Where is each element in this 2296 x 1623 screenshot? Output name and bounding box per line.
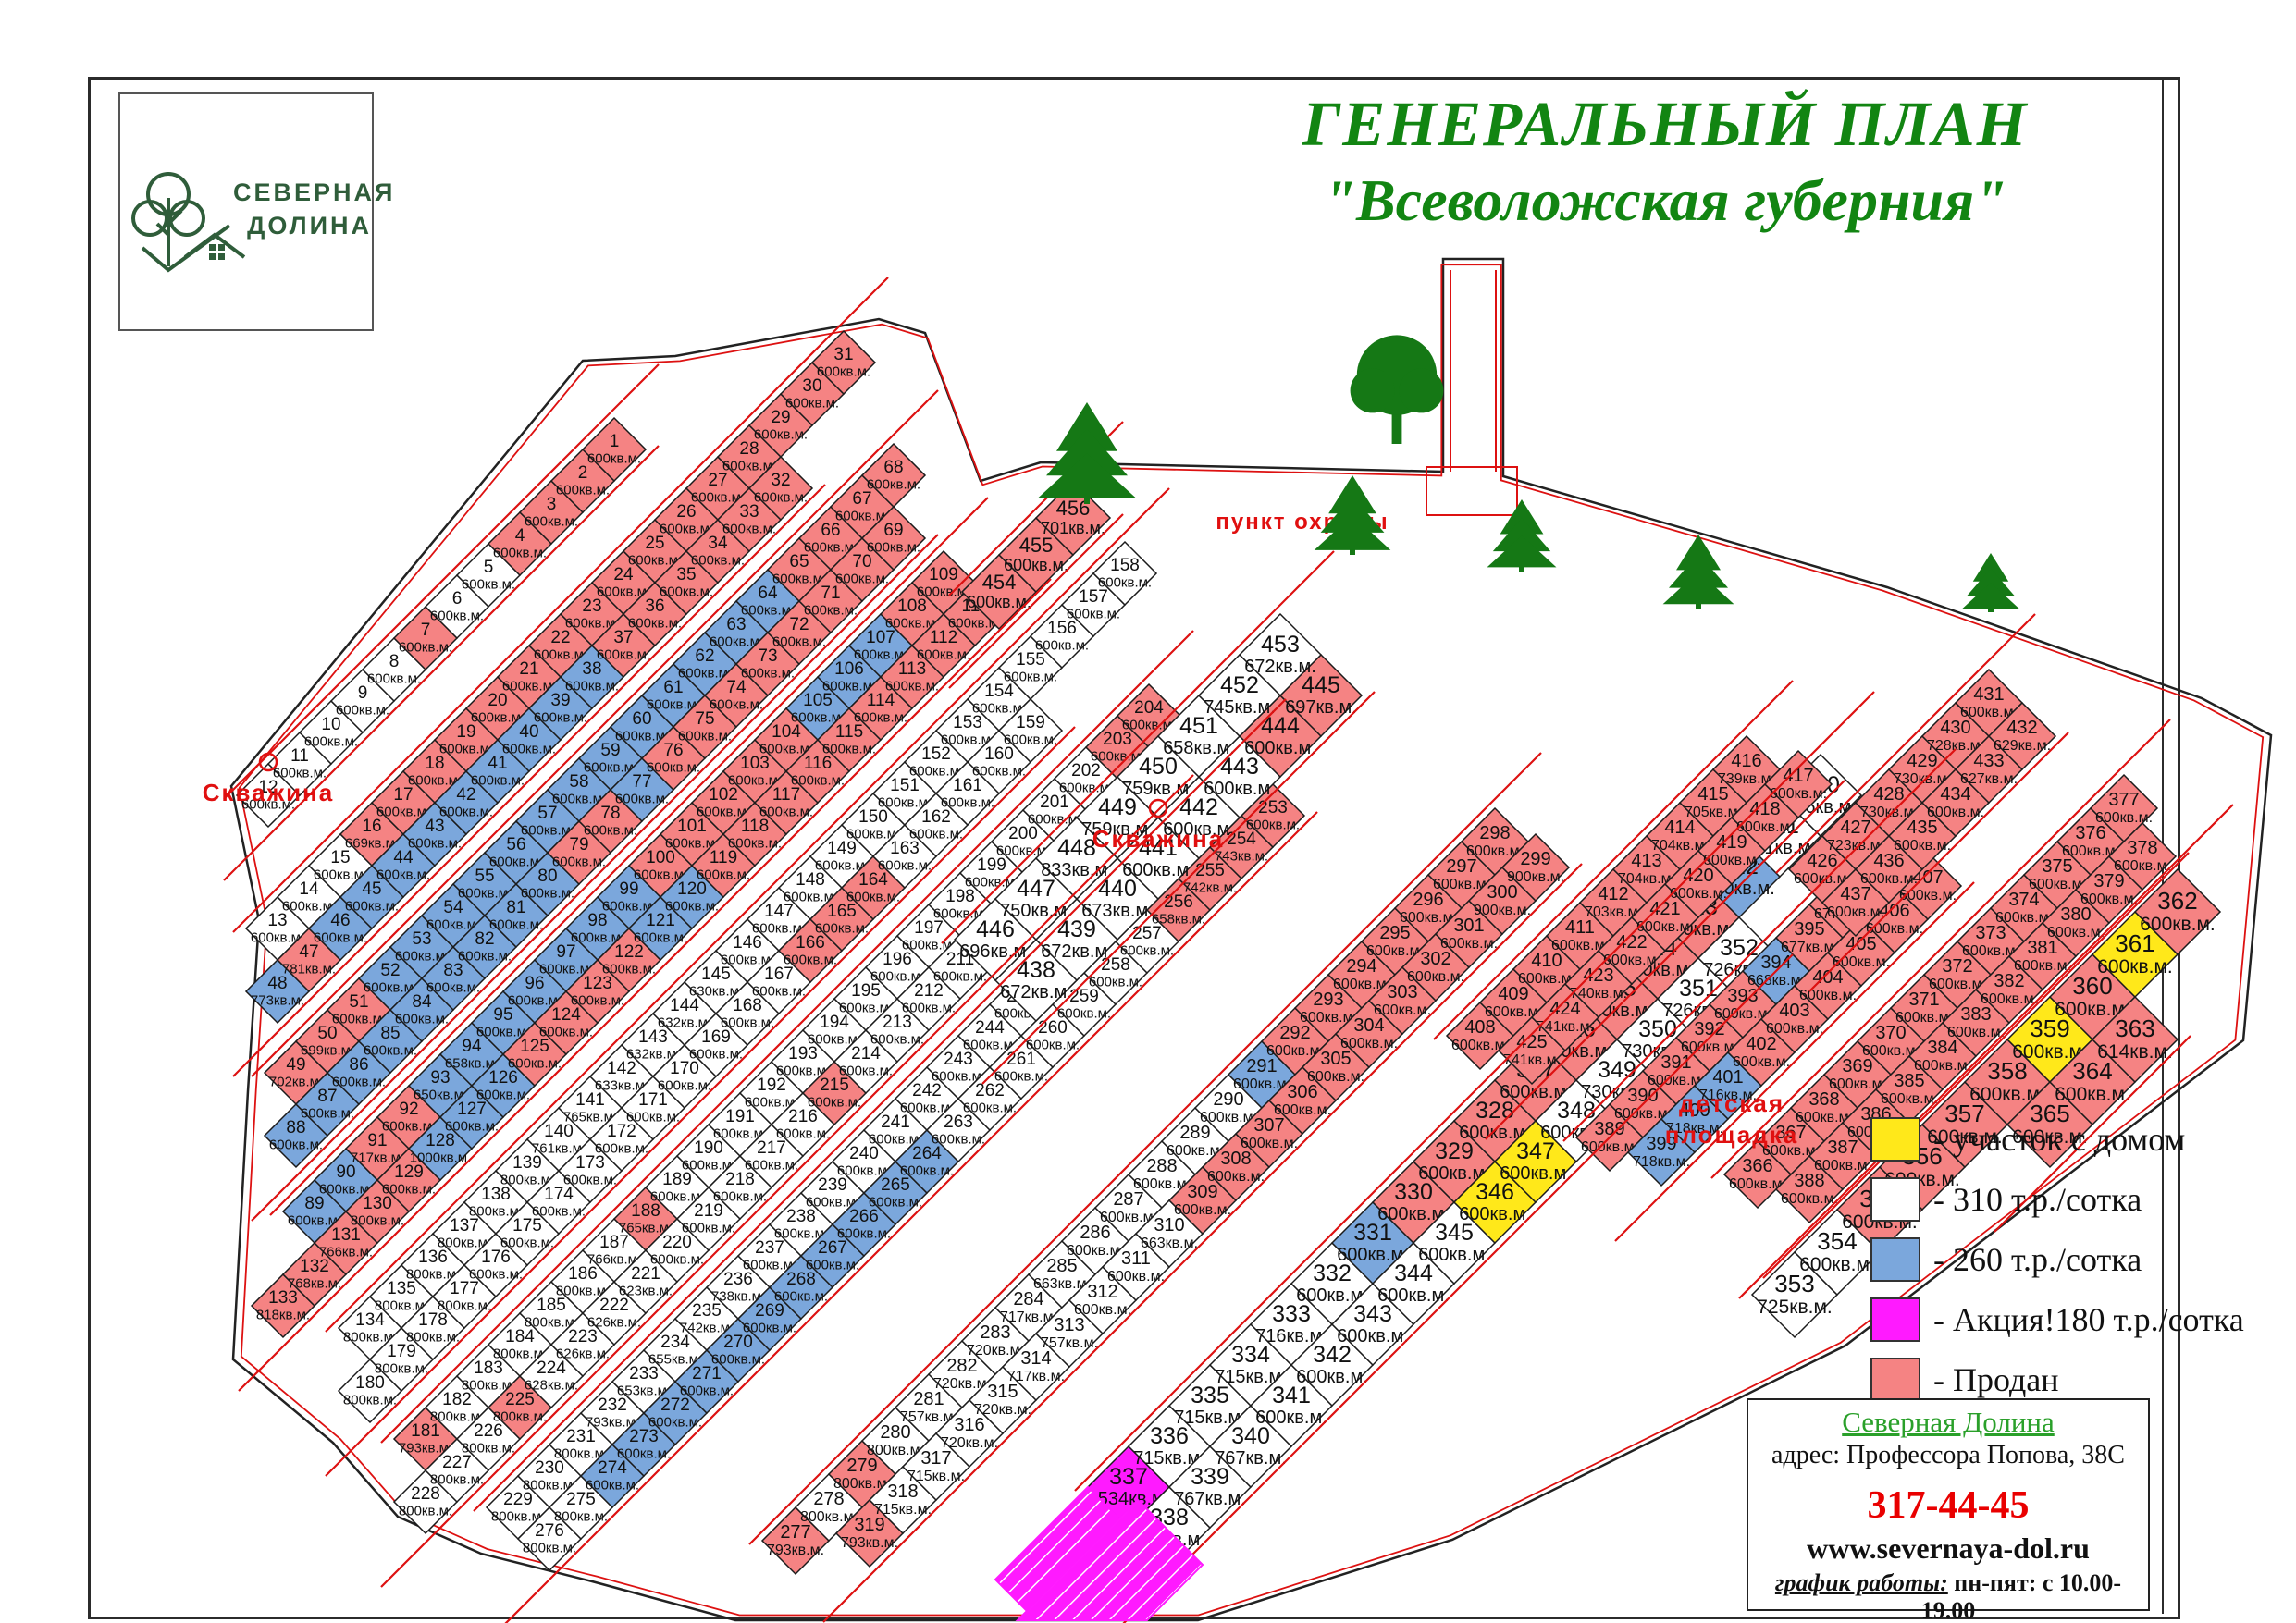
plot-area: 600кв.м. [1899,888,1957,904]
plot-area: 600кв.м. [408,835,462,851]
plot-number: 429 [1907,751,1937,771]
plot-area: 600кв.м. [1035,637,1089,653]
plot-number: 313 [1054,1315,1084,1335]
plot-number: 68 [883,458,903,477]
plot-area: 626кв.м. [587,1314,641,1330]
plot-area: 701кв.м. [1041,519,1105,537]
plot-number: 159 [1016,713,1045,732]
plot-area: 600кв.м. [430,608,484,623]
plot-area: 600кв.м. [885,678,939,694]
plot-number: 280 [880,1422,910,1443]
plot-area: 600кв.м. [565,678,619,694]
plot-area: 600кв.м. [1241,1136,1298,1151]
plot-area: 800кв.м. [554,1508,608,1524]
plot-area: 600кв.м. [697,867,750,882]
plot-area: 725кв.м. [1757,1297,1833,1318]
logo: СЕВЕРНАЯ ДОЛИНА [118,92,374,331]
plot-area: 900кв.м. [1474,903,1531,918]
title-line2: "Всеволожская губерния" [1092,166,2239,235]
plot-number: 302 [1420,949,1450,969]
plot-area: 600кв.м. [2047,925,2105,941]
plot-area: 600кв.м. [521,885,574,901]
plot-number: 437 [1840,884,1870,904]
legend-swatch [1870,1297,1920,1342]
road-edge [1116,954,1793,1623]
plot-area: 600кв.м. [650,1251,704,1267]
plot-area: 773кв.м. [251,992,304,1008]
plot-area: 800кв.м. [343,1392,397,1408]
plot-area: 600кв.м. [1781,1191,1838,1207]
plot-area: 600кв.м. [822,741,876,756]
plot-area: 600кв.м. [1204,779,1276,799]
plot-area: 600кв.м. [1026,1037,1080,1052]
plot-area: 600кв.м. [2095,810,2153,826]
contact-hours-label: график работы: [1775,1569,1948,1596]
legend-label: - Продан [1933,1360,2059,1399]
plot-number: 289 [1179,1123,1210,1143]
plot-number: 374 [2008,890,2039,910]
legend-item-R: - Продан [1870,1358,2166,1402]
plot-area: 600кв.м. [1440,936,1498,952]
plot-area: 600кв.м. [493,545,547,560]
plot-area: 600кв.м. [972,763,1026,779]
plot-area: 628кв.м. [525,1377,578,1393]
legend-swatch [1870,1177,1920,1222]
plot-area: 600кв.м. [869,1194,922,1210]
plot-area: 715кв.м. [907,1469,965,1484]
plot-area: 600кв.м. [586,1477,639,1493]
plot-area: 600кв.м. [658,1077,711,1093]
plot-area: 600кв.м. [846,889,900,904]
plot-area: 793кв.м. [841,1535,898,1551]
plot-area: 600кв.м. [628,615,682,631]
plot-area: 600кв.м. [552,854,606,869]
plot-area: 600кв.м. [691,552,745,568]
plot-area: 600кв.м. [680,1383,734,1398]
plot-area: 720кв.м. [974,1402,1031,1418]
plot-number: 383 [1960,1004,1991,1025]
plot-number: 9 [358,683,368,703]
plot-area: 1000кв.м. [410,1150,472,1165]
plot-area: 600кв.м. [584,822,637,838]
plot-area: 600кв.м. [2114,858,2171,874]
plot-area: 600кв.м. [1733,1054,1790,1070]
plot-area: 658кв.м. [1152,911,1205,927]
plot-area: 742кв.м. [1183,879,1237,895]
plot-area: 600кв.м. [752,983,806,999]
contact-box: Северная Долина адрес: Профессора Попова… [1747,1398,2150,1611]
plot-area: 600кв.м. [626,1109,680,1125]
plot-area: 697кв.м. [1285,697,1357,718]
plot-number: 371 [1908,990,1939,1010]
plot-area: 600кв.м. [399,639,452,655]
plot-number: 301 [1453,916,1484,936]
plot-number: 317 [920,1448,951,1469]
plot-number: 427 [1840,818,1870,838]
plot-area: 800кв.м. [351,1212,404,1228]
plot-area: 600кв.м. [711,1351,765,1367]
plot-number: 373 [1975,923,2006,943]
plot-number: 291 [1246,1056,1277,1076]
plot-area: 833кв.м. [1041,860,1113,880]
contact-website: www.severnaya-dol.ru [1748,1531,2148,1566]
plot-area: 600кв.м. [426,979,480,995]
plot-number: 279 [846,1456,877,1476]
plot-area: 600кв.м. [721,1014,774,1030]
plot-number: 31 [833,345,853,364]
round-tree-icon [1351,335,1444,444]
plot-number: 408 [1464,1017,1495,1038]
plot-number: 281 [913,1389,944,1409]
legend-item-W: - 310 т.р./сотка [1870,1177,2166,1222]
plot-area: 696кв.м. [959,941,1031,962]
plot-area: 793кв.м. [767,1543,824,1558]
plot-area: 600кв.м. [835,571,889,586]
plot-area: 781кв.м. [282,961,336,977]
plot-area: 600кв.м. [1337,1326,1409,1346]
plot-area: 600кв.м. [1122,860,1194,880]
plot-number: 372 [1942,956,1972,977]
plot-area: 600кв.м. [776,1125,830,1141]
plot-area: 600кв.м. [1981,991,2038,1007]
plot-area: 600кв.м. [489,916,543,932]
plot-number: 384 [1927,1038,1957,1058]
plot-number: 283 [980,1322,1010,1343]
plot-area: 600кв.м. [571,992,624,1008]
plot-number: 311 [1121,1248,1151,1269]
plot-number: 7 [421,621,431,640]
logo-text: СЕВЕРНАЯ ДОЛИНА [233,176,372,242]
plot-number: 307 [1253,1115,1284,1136]
plot-area: 600кв.м. [754,489,808,505]
plot-area: 600кв.м. [534,709,587,725]
plot-area: 600кв.м. [660,584,713,599]
plot-area: 600кв.м. [713,1188,767,1204]
plot-area: 800кв.м. [430,1471,484,1487]
plot-number: 316 [954,1415,984,1435]
plot-area: 600кв.м. [615,791,669,806]
plot-number: 292 [1279,1023,1310,1043]
plot-area: 600кв.м. [469,1266,523,1282]
legend-item-Y: - участок с домом [1870,1117,2166,1162]
plot-number: 366 [1742,1156,1772,1176]
plot-area: 600кв.м. [754,426,808,442]
plot-area: 600кв.м. [1246,817,1300,832]
plot-number: 362 [2157,887,2197,915]
plot-number: 381 [2027,938,2057,958]
plot-number: 294 [1346,956,1376,977]
plot-area: 600кв.м. [563,1172,617,1187]
plot-area: 600кв.м. [1894,838,1951,854]
plot-number: 109 [929,565,958,584]
plot-number: 309 [1187,1182,1217,1202]
page-title: ГЕНЕРАЛЬНЫЙ ПЛАН "Всеволожская губерния" [1092,88,2239,235]
plot-number: 410 [1531,951,1562,971]
plot-area: 759кв.м. [1122,779,1194,799]
plot-number: 158 [1110,556,1140,575]
plot-number: 411 [1565,917,1595,938]
plot-area: 600кв.м. [1459,1204,1531,1224]
plot-area: 658кв.м. [1163,738,1235,758]
plot-area: 600кв.м. [336,702,389,718]
legend-swatch [1870,1237,1920,1282]
plot-area: 600кв.м. [804,602,858,618]
plot-number: 284 [1013,1289,1043,1309]
plot-area: 600кв.м. [815,920,869,936]
plot-number: 403 [1779,1001,1809,1021]
plot-number: 377 [2108,790,2139,810]
plot-area: 600кв.м. [854,709,907,725]
plot-number: 401 [1712,1067,1743,1088]
plot-area: 600кв.м. [1799,988,1857,1003]
plot-area: 600кв.м. [2014,958,2071,974]
map-label: Скважина [203,779,334,806]
plot-area: 600кв.м. [556,482,610,498]
contact-phone: 317-44-45 [1748,1483,2148,1528]
plot-number: 295 [1379,923,1410,943]
plot-number: 253 [1258,798,1288,818]
plot-area: 767кв.м. [1174,1489,1246,1509]
legend-item-M: - Акция!180 т.р./сотка [1870,1297,2166,1342]
plot-area: 600кв.м. [1255,1408,1327,1428]
plot-area: 600кв.м. [502,741,556,756]
plot-area: 600кв.м. [1296,1367,1368,1387]
plot-area: 600кв.м. [689,1046,743,1062]
plot-area: 600кв.м. [1418,1245,1490,1265]
legend-item-B: - 260 т.р./сотка [1870,1237,2166,1282]
plot-area: 600кв.м. [722,521,776,536]
plot-number: 368 [1808,1089,1839,1110]
plot-area: 718кв.м. [1633,1154,1690,1170]
plot-number: 290 [1213,1089,1243,1110]
plot-number: 69 [883,521,903,540]
plot-area: 800кв.м. [462,1440,515,1456]
legend-label: - Акция!180 т.р./сотка [1933,1300,2244,1339]
plot-area: 600кв.м. [2140,914,2216,935]
plot-area: 600кв.м. [458,948,512,964]
plot-area: 600кв.м. [1927,805,1984,820]
plot-area: 800кв.м. [523,1540,576,1555]
plot-area: 672кв.м. [1041,941,1113,962]
plot-number: 433 [1973,751,2004,771]
plot-area: 800кв.м. [438,1297,491,1313]
plot-area: 600кв.м. [1814,1158,1871,1174]
plot-area: 800кв.м. [406,1329,460,1345]
plot-area: 600кв.м. [745,1157,798,1173]
plot-number: 376 [2075,823,2105,843]
plot-area: 715кв.м. [874,1502,932,1518]
plot-number: 412 [1598,884,1628,904]
plot-area: 600кв.м. [759,804,813,819]
plot-area: 600кв.м. [382,1181,436,1197]
plot-number: 315 [987,1382,1018,1402]
plot-area: 600кв.м. [2097,956,2173,977]
plot-area: 800кв.м. [493,1408,547,1424]
plot-area: 600кв.м. [1340,1036,1398,1051]
map-label: детская [1679,1089,1784,1117]
plot-area: 600кв.м. [508,1055,562,1071]
plot-area: 717кв.м. [1007,1369,1065,1384]
plot-area: 766кв.м. [319,1244,373,1260]
plot-area: 720кв.м. [941,1435,998,1451]
plot-number: 277 [780,1522,810,1543]
plot-area: 600кв.м. [682,1220,735,1236]
plot-number: 314 [1020,1348,1051,1369]
plot-number: 298 [1479,823,1510,843]
plot-area: 600кв.м. [525,513,578,529]
plot-area: 600кв.м. [710,696,763,712]
plot-number: 286 [1080,1223,1110,1243]
plot-area: 600кв.м. [1107,1269,1165,1285]
plot-area: 672кв.м. [1000,982,1072,1002]
plot-area: 600кв.м. [2055,1084,2130,1105]
plot-area: 600кв.м. [587,450,641,466]
plot-area: 600кв.м. [364,1042,417,1058]
plot-area: 600кв.м. [1004,556,1068,574]
plot-number: 380 [2060,904,2091,925]
plot-number: 300 [1487,882,1517,903]
plot-area: 600кв.м. [1377,1285,1450,1306]
plot-area: 768кв.м. [288,1275,341,1291]
logo-line2: ДОЛИНА [233,209,372,242]
plot-area: 600кв.м. [728,835,782,851]
plot-area: 600кв.м. [476,1087,530,1102]
plot-area: 600кв.м. [500,1235,554,1250]
plot-number: 435 [1907,818,1937,838]
plot-number: 352 [1720,935,1759,961]
plot-number: 282 [946,1356,977,1376]
plot-area: 614кв.м. [2097,1041,2173,1063]
plot-area: 600кв.м. [1067,606,1120,621]
plot-area: 600кв.м. [1244,738,1316,758]
plot-area: 600кв.м. [878,857,932,873]
plot-area: 600кв.м. [269,1137,323,1152]
plot-area: 672кв.м. [1244,657,1316,677]
plot-area: 600кв.м. [1004,669,1057,684]
pine-tree-icon [1962,553,2018,612]
contact-hours: график работы: пн-пят: с 10.00-19.00 [1748,1569,2148,1623]
plot-area: 600кв.м. [617,1445,671,1461]
plot-number: 285 [1046,1256,1077,1276]
plot-area: 600кв.м. [1500,1163,1572,1184]
plot-area: 673кв.м. [1081,901,1154,921]
plot-area: 600кв.м. [867,539,920,555]
plot-area: 600кв.м. [837,1225,891,1241]
plot-number: 402 [1746,1034,1776,1054]
pine-tree-icon [1038,402,1136,504]
plot-area: 600кв.м. [817,363,870,379]
plot-number: 413 [1631,851,1661,871]
plot-area: 600кв.м. [678,728,732,744]
plot-area: 600кв.м. [647,759,700,775]
pine-tree-icon [1663,535,1734,609]
plot-number: 3 [547,495,557,514]
plot-number: 363 [2115,1014,2154,1042]
plot-number: 305 [1320,1049,1351,1069]
legend: - участок с домом- 310 т.р./сотка- 260 т… [1870,1117,2166,1418]
plot-area: 745кв.м. [1204,697,1276,718]
plot-area: 600кв.м. [595,1140,648,1156]
plot-area: 767кв.м. [1215,1448,1287,1469]
plot-area: 600кв.м. [806,1257,859,1273]
plot-number: 5 [484,558,494,577]
map-label: площадка [1665,1121,1798,1149]
plot-area: 600кв.м. [1833,954,1890,970]
plot-area: 600кв.м. [1207,1169,1265,1185]
plot-number: 299 [1520,849,1550,869]
plot-area: 600кв.м. [932,1131,985,1147]
plot-number: 287 [1113,1189,1143,1210]
plot-area: 600кв.м. [791,772,845,788]
contact-address: адрес: Профессора Попова, 38С [1748,1441,2148,1470]
plot-number: 369 [1842,1056,1872,1076]
plot-number: 416 [1731,751,1761,771]
plot-area: 629кв.м. [1994,738,2051,754]
plot-area: 627кв.м. [1960,771,2018,787]
plot-number: 430 [1940,718,1970,738]
contact-company: Северная Долина [1748,1406,2148,1439]
plot-area: 600кв.м. [602,961,656,977]
plot-area: 600кв.м. [1881,1091,1938,1107]
plot-area: 600кв.м. [1374,1002,1431,1018]
legend-label: - участок с домом [1933,1120,2185,1159]
plot-number: 306 [1287,1082,1317,1102]
plot-area: 600кв.м. [1947,1025,2005,1040]
plot-area: 600кв.м. [963,1100,1017,1115]
plot-area: 600кв.м. [917,646,970,662]
plot-area: 800кв.м. [375,1360,428,1376]
plot-area: 626кв.м. [556,1346,610,1361]
plot-number: 428 [1873,784,1904,805]
plot-number: 415 [1697,784,1728,805]
plot-number: 319 [854,1515,884,1535]
plot-area: 600кв.м. [1827,904,1884,920]
plot-area: 600кв.м. [1914,1058,1971,1074]
legend-swatch [1870,1117,1920,1162]
plot-number: 453 [1261,632,1300,658]
plot-area: 600кв.м. [301,1105,354,1121]
title-line1: ГЕНЕРАЛЬНЫЙ ПЛАН [1092,88,2239,161]
plot-area: 600кв.м. [395,1011,449,1027]
plot-area: 600кв.м. [1004,732,1057,747]
logo-line1: СЕВЕРНАЯ [233,176,372,209]
plot-area: 600кв.м. [808,1094,861,1110]
plot-number: 32 [771,471,790,490]
plot-number: 414 [1664,818,1695,838]
plot-area: 600кв.м. [743,1320,796,1335]
plot-area: 600кв.м. [1866,921,1923,937]
plot-area: 600кв.м. [839,1063,893,1078]
master-plan-page: 12600кв.м.11600кв.м.10600кв.м.9600кв.м.8… [0,0,2296,1623]
plot-number: 304 [1353,1015,1384,1036]
plot-area: 600кв.м. [1766,1021,1823,1037]
plot-number: 382 [1994,971,2024,991]
plot-area: 600кв.м. [445,1118,499,1134]
legend-label: - 260 т.р./сотка [1933,1240,2142,1279]
legend-swatch [1870,1358,1920,1402]
plot-area: 600кв.м. [345,898,399,914]
plot-area: 600кв.м. [933,968,987,984]
plot-area: 600кв.м. [367,670,421,686]
plot-area: 600кв.м. [1407,969,1464,985]
plot-area: 600кв.м. [902,1000,956,1015]
plot-number: 293 [1313,990,1343,1010]
plot-area: 600кв.м. [471,772,525,788]
plot-area: 600кв.м. [870,1031,924,1047]
plot-area: 600кв.м. [665,898,719,914]
plot-area: 600кв.м. [1307,1069,1364,1085]
plot-area: 750кв.м. [1000,901,1072,921]
